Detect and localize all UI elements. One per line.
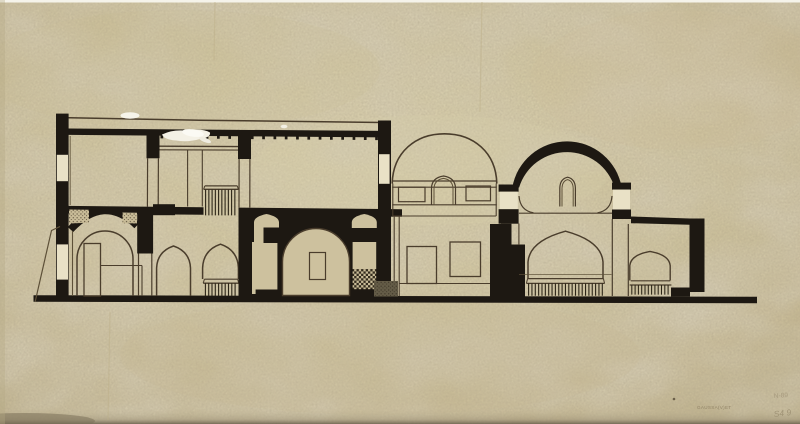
svg-text:GAUSSA(V)ET: GAUSSA(V)ET	[697, 405, 731, 410]
svg-text:N-89: N-89	[774, 392, 789, 400]
svg-text:S4 9: S4 9	[773, 407, 792, 419]
